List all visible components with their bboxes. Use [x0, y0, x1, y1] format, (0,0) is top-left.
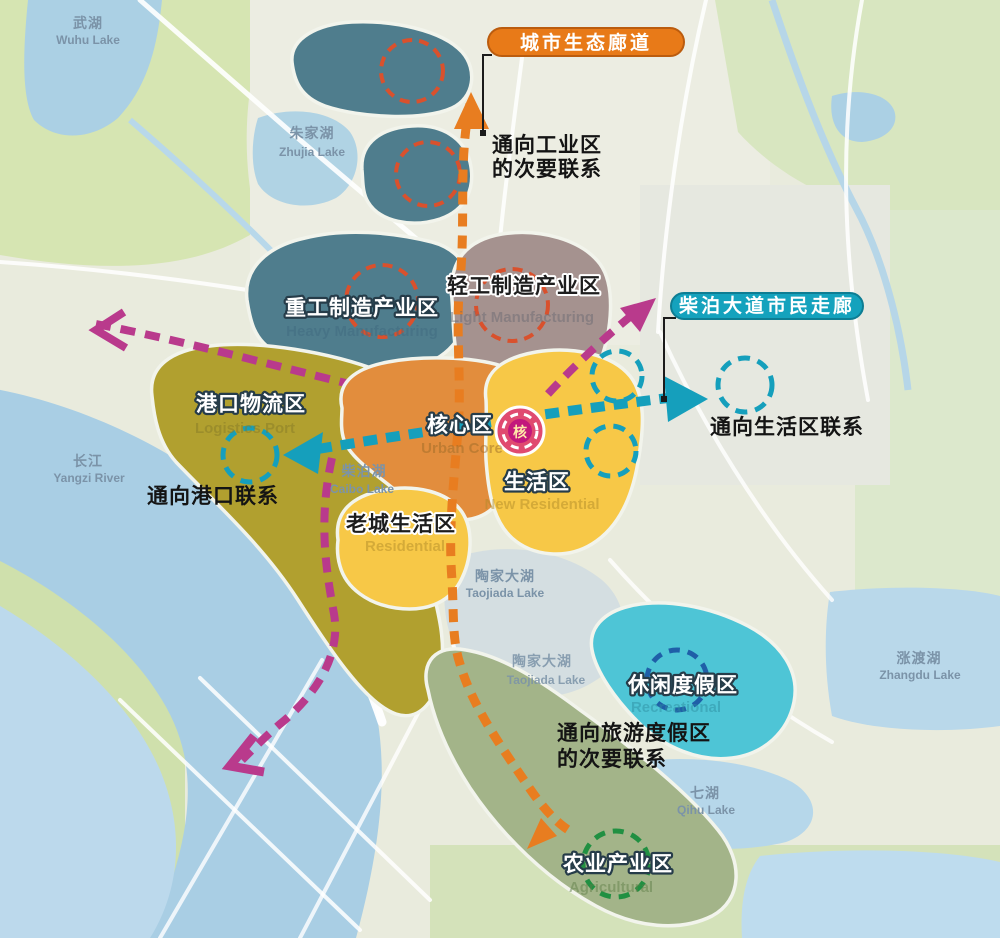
zone-label-heavy-en: Heavy Manufacturing: [286, 323, 438, 340]
zone-label-resnew-en: New Residential: [484, 496, 599, 513]
lake-label-qihu-zh: 七湖: [690, 785, 720, 801]
zone-label-agri-en: Agricultural: [569, 879, 653, 896]
civic-banner-label: 柴泊大道市民走廊: [678, 294, 855, 317]
lake-label-zhangdu-zh: 涨渡湖: [897, 650, 942, 666]
zone-label-heavy-zh: 重工制造产业区: [285, 296, 439, 320]
plain-east: [640, 185, 890, 485]
lake-label-zhujia-en: Zhujia Lake: [279, 145, 345, 159]
zone-label-logistics-zh: 港口物流区: [196, 392, 306, 416]
zone-label-agri-zh: 农业产业区: [562, 852, 673, 876]
planning-map: 核 武湖 Wuhu Lake 朱家湖 Zhujia Lake 长江 Yangzi…: [0, 0, 1000, 938]
zone-label-logistics-en: Logistics Port: [195, 420, 295, 437]
annotation-industry-line1: 通向工业区: [492, 133, 602, 157]
lake-label-yangzi-en: Yangzi River: [53, 471, 125, 485]
lake-label-qihu-en: Qihu Lake: [677, 803, 735, 817]
lake-label-caibo-en: Caibo Lake: [330, 482, 394, 496]
zone-label-resold-en: Residential: [365, 538, 445, 555]
core-marker: 核: [496, 407, 544, 455]
zone-industrial-north-2: [362, 126, 472, 223]
annotation-industry-line2: 的次要联系: [492, 157, 602, 181]
lake-label-taojiada-zh: 陶家大湖: [475, 568, 535, 584]
zone-label-light-en: Light Manufacturing: [450, 309, 594, 326]
zone-label-core-zh: 核心区: [427, 413, 493, 437]
lake-label-wuhu-en: Wuhu Lake: [56, 33, 120, 47]
eco-banner-leader-dot: [480, 130, 486, 136]
zone-label-leisure-en: Recreational: [631, 699, 721, 716]
water-southeast: [742, 850, 1000, 938]
annotation-living: 通向生活区联系: [710, 415, 864, 439]
zone-label-resnew-zh: 生活区: [504, 470, 570, 494]
eco-banner-label: 城市生态廊道: [520, 31, 652, 54]
lake-label-caibo-zh: 柴泊湖: [341, 463, 387, 479]
zone-label-resold-zh: 老城生活区: [346, 512, 456, 536]
lake-label-taojiada-en: Taojiada Lake: [466, 586, 545, 600]
annotation-tourism-line2: 的次要联系: [557, 747, 667, 771]
lake-label-yangzi-zh: 长江: [73, 453, 103, 469]
civic-banner-leader-dot: [661, 396, 667, 402]
map-canvas: 核 武湖 Wuhu Lake 朱家湖 Zhujia Lake 长江 Yangzi…: [0, 0, 1000, 938]
zone-label-light-zh: 轻工制造产业区: [447, 274, 601, 298]
zone-label-leisure-zh: 休闲度假区: [627, 673, 738, 697]
core-marker-glyph: 核: [513, 424, 527, 440]
lake-label-taojiada2-zh: 陶家大湖: [512, 653, 572, 669]
lake-label-taojiada2-en: Taojiada Lake: [507, 673, 586, 687]
lake-label-zhujia-zh: 朱家湖: [290, 125, 335, 141]
annotation-port: 通向港口联系: [147, 484, 279, 508]
lake-label-zhangdu-en: Zhangdu Lake: [879, 668, 961, 682]
zone-label-core-en: Urban Core: [421, 440, 503, 457]
lake-label-wuhu-zh: 武湖: [73, 15, 103, 31]
annotation-tourism-line1: 通向旅游度假区: [557, 721, 711, 745]
